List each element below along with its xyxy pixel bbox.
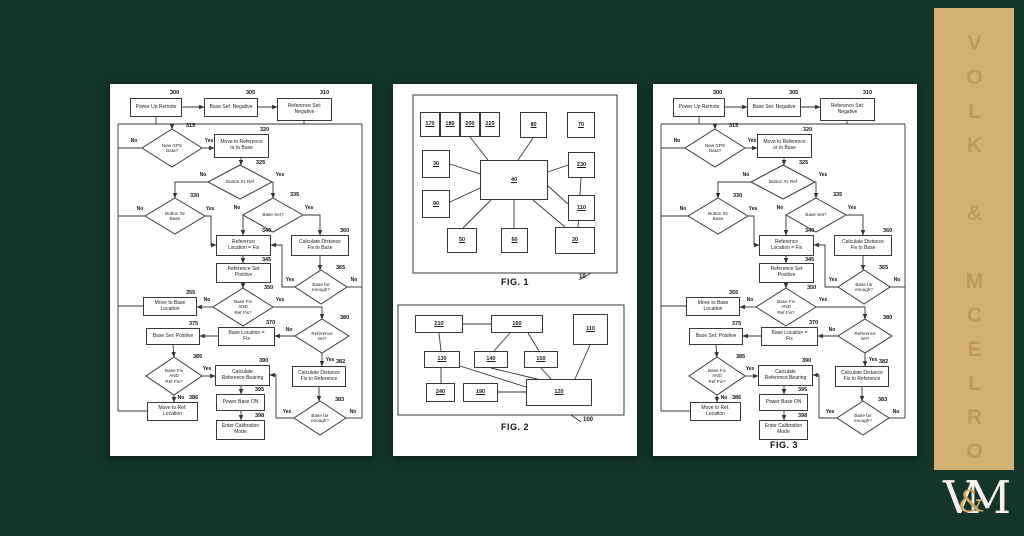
reference-numeral: 310	[863, 90, 872, 96]
process-node: Move to Reference or to Base	[757, 134, 812, 158]
process-node: 90	[422, 190, 450, 218]
branch-label: Yes	[829, 277, 838, 283]
reference-numeral: 310	[320, 90, 329, 96]
branch-label: Yes	[283, 409, 292, 415]
process-node: 70	[567, 112, 595, 138]
brand-logo: V & M	[934, 470, 1014, 536]
process-node: 130	[424, 351, 460, 368]
process-node: 220	[480, 112, 500, 137]
process-node: 190	[463, 383, 498, 402]
decision-node: New GPS Data?	[691, 129, 739, 167]
reference-numeral: 360	[883, 228, 892, 234]
process-node: Base Set: Positive	[689, 328, 743, 345]
fig2-caption: FIG. 2	[491, 422, 539, 432]
decision-node: Button #1 Ref	[214, 165, 265, 199]
process-node: 240	[426, 383, 455, 402]
process-node: 110	[568, 195, 595, 221]
reference-numeral: 375	[732, 321, 741, 327]
process-node: Base Set: Positive	[146, 328, 200, 345]
process-node: Calculate Distance Fix to Base	[291, 235, 349, 256]
logo-ampersand-icon: &	[958, 485, 985, 520]
decision-node: Reference set?	[843, 319, 886, 353]
patent-page-fig1-fig2: FIG. 1 10 FIG. 2 100 1701802002208070309…	[393, 84, 637, 456]
process-node: Base Set: Negative	[747, 98, 801, 117]
branch-label: Yes	[305, 205, 314, 211]
reference-numeral: 398	[798, 413, 807, 419]
branch-label: No	[674, 138, 681, 144]
decision-node: Base far enough?	[843, 270, 885, 304]
reference-numeral: 305	[246, 90, 255, 96]
reference-numeral: 382	[336, 359, 345, 365]
branch-label: No	[777, 205, 784, 211]
process-node: 180	[440, 112, 460, 137]
process-node: Power Up Remote	[673, 98, 725, 117]
branch-label: Yes	[203, 366, 212, 372]
reference-numeral: 325	[256, 160, 265, 166]
reference-numeral: 320	[803, 127, 812, 133]
process-node: Move to Ref. Location	[690, 402, 741, 421]
decision-node: Base far enough?	[842, 401, 884, 435]
process-node: Calculate Distance Fix to Base	[834, 235, 892, 256]
branch-label: Yes	[205, 138, 214, 144]
reference-numeral: 350	[264, 285, 273, 291]
process-node: Move to Base Location	[143, 297, 197, 316]
branch-label: No	[680, 206, 687, 212]
branch-label: Yes	[276, 172, 285, 178]
reference-numeral: 380	[340, 315, 349, 321]
reference-numeral: 370	[266, 320, 275, 326]
branch-label: Yes	[276, 297, 285, 303]
process-node: 30	[422, 150, 450, 178]
decision-node: Base far enough?	[299, 401, 341, 435]
reference-numeral: 315	[186, 123, 195, 129]
process-node: 110	[573, 314, 608, 345]
branch-label: Yes	[819, 297, 828, 303]
fig1-caption: FIG. 1	[491, 277, 539, 287]
branch-label: No	[204, 297, 211, 303]
fig2-pointer-label: 100	[583, 417, 593, 423]
branch-label: No	[131, 138, 138, 144]
reference-numeral: 335	[833, 192, 842, 198]
reference-numeral: 360	[340, 228, 349, 234]
reference-numeral: 385	[736, 354, 745, 360]
brand-vertical-text: VOLK & MCELROY	[962, 32, 986, 508]
reference-numeral: 382	[879, 359, 888, 365]
reference-numeral: 386	[732, 395, 741, 401]
process-node: Move to Ref. Location	[147, 402, 198, 421]
branch-label: No	[893, 409, 900, 415]
branch-label: No	[200, 172, 207, 178]
reference-numeral: 325	[799, 160, 808, 166]
fig1-pointer-label: 10	[579, 274, 586, 280]
reference-numeral: 305	[789, 90, 798, 96]
reference-numeral: 335	[290, 192, 299, 198]
branch-label: Yes	[326, 357, 335, 363]
decision-node: Button #2 Base	[151, 198, 199, 234]
reference-numeral: 386	[189, 395, 198, 401]
reference-numeral: 390	[259, 358, 268, 364]
reference-numeral: 365	[879, 265, 888, 271]
decision-node: Base far enough?	[300, 270, 342, 304]
branch-label: No	[829, 327, 836, 333]
reference-numeral: 355	[729, 290, 738, 296]
decision-node: Base Set?	[249, 198, 297, 232]
patent-page-fig3-left: Power Up RemoteBase Set: NegativeReferen…	[110, 84, 372, 456]
reference-numeral: 300	[713, 90, 722, 96]
process-node: 20	[555, 227, 595, 254]
patent-page-fig3-right: FIG. 3 Power Up RemoteBase Set: Negative…	[653, 84, 917, 456]
branch-label: No	[178, 395, 185, 401]
branch-label: No	[234, 205, 241, 211]
process-node: Power Up Remote	[130, 98, 182, 117]
process-node: 230	[568, 152, 595, 178]
process-node: Power Base ON	[216, 394, 265, 411]
process-node: 50	[447, 228, 477, 253]
brand-stripe: VOLK & MCELROY V & M	[934, 8, 1014, 536]
reference-numeral: 395	[798, 387, 807, 393]
reference-numeral: 320	[260, 127, 269, 133]
reference-numeral: 330	[733, 193, 742, 199]
branch-label: No	[286, 327, 293, 333]
process-node: Enter Calibration Mode	[216, 420, 265, 440]
reference-numeral: 330	[190, 193, 199, 199]
fig3-caption: FIG. 3	[757, 440, 811, 450]
branch-label: Yes	[748, 138, 757, 144]
process-node: Base Location = Fix	[761, 327, 818, 346]
branch-label: No	[137, 206, 144, 212]
branch-label: No	[743, 172, 750, 178]
branch-label: Yes	[819, 172, 828, 178]
decision-node: Button #1 Ref	[757, 165, 808, 199]
decision-node: Button #2 Base	[694, 198, 742, 234]
process-node: 40	[480, 160, 548, 200]
branch-label: No	[747, 297, 754, 303]
process-node: Enter Calibration Mode	[759, 420, 808, 440]
process-node: Move to Base Location	[686, 297, 740, 316]
process-node: 120	[526, 379, 592, 406]
branch-label: Yes	[869, 357, 878, 363]
branch-label: No	[351, 277, 358, 283]
process-node: Reference Set Positive	[216, 263, 271, 283]
branch-label: No	[721, 395, 728, 401]
reference-numeral: 385	[193, 354, 202, 360]
decision-node: Base Set?	[792, 198, 840, 232]
reference-numeral: 370	[809, 320, 818, 326]
reference-numeral: 380	[883, 315, 892, 321]
reference-numeral: 365	[336, 265, 345, 271]
branch-label: No	[894, 277, 901, 283]
decision-node: New GPS Data?	[148, 129, 196, 167]
process-node: 200	[460, 112, 480, 137]
reference-numeral: 345	[805, 257, 814, 263]
branch-label: Yes	[746, 366, 755, 372]
process-node: 160	[491, 315, 543, 333]
process-node: Base Set: Negative	[204, 98, 258, 117]
patent-collage: Power Up RemoteBase Set: NegativeReferen…	[0, 0, 1024, 536]
decision-node: Base Fix AND Ref Fix?	[219, 288, 267, 326]
branch-label: Yes	[848, 205, 857, 211]
process-node: Move to Reference or to Base	[214, 134, 269, 158]
process-node: 80	[520, 112, 547, 138]
branch-label: Yes	[826, 409, 835, 415]
decision-node: Base Fix AND Ref Fix?	[762, 288, 810, 326]
branch-label: Yes	[206, 206, 215, 212]
process-node: Reference Set: Negative	[820, 98, 875, 121]
process-node: 210	[415, 315, 463, 333]
process-node: Reference Location = Fix	[216, 235, 271, 256]
reference-numeral: 315	[729, 123, 738, 129]
process-node: Reference Set Positive	[759, 263, 814, 283]
process-node: 170	[420, 112, 440, 137]
reference-numeral: 398	[255, 413, 264, 419]
process-node: Reference Set: Negative	[277, 98, 332, 121]
process-node: Calculate Distance Fix to Reference	[835, 366, 889, 387]
decision-node: Base Fix AND Ref Fix?	[695, 357, 740, 395]
decision-node: Base Fix AND Ref Fix?	[152, 357, 197, 395]
reference-numeral: 383	[878, 397, 887, 403]
process-node: 140	[474, 351, 508, 368]
process-node: Power Base ON	[759, 394, 808, 411]
branch-label: Yes	[286, 277, 295, 283]
reference-numeral: 340	[805, 228, 814, 234]
reference-numeral: 375	[189, 321, 198, 327]
reference-numeral: 390	[802, 358, 811, 364]
branch-label: No	[350, 409, 357, 415]
branch-label: Yes	[749, 206, 758, 212]
reference-numeral: 300	[170, 90, 179, 96]
process-node: Calculate Reference Bearing	[215, 365, 270, 386]
process-node: 150	[524, 351, 558, 368]
process-node: Calculate Reference Bearing	[758, 365, 813, 386]
reference-numeral: 340	[262, 228, 271, 234]
decision-node: Reference set?	[300, 319, 343, 353]
reference-numeral: 350	[807, 285, 816, 291]
process-node: 60	[501, 228, 528, 253]
reference-numeral: 383	[335, 397, 344, 403]
reference-numeral: 345	[262, 257, 271, 263]
process-node: Calculate Distance Fix to Reference	[292, 366, 346, 387]
reference-numeral: 355	[186, 290, 195, 296]
process-node: Base Location = Fix	[218, 327, 275, 346]
process-node: Reference Location = Fix	[759, 235, 814, 256]
reference-numeral: 395	[255, 387, 264, 393]
